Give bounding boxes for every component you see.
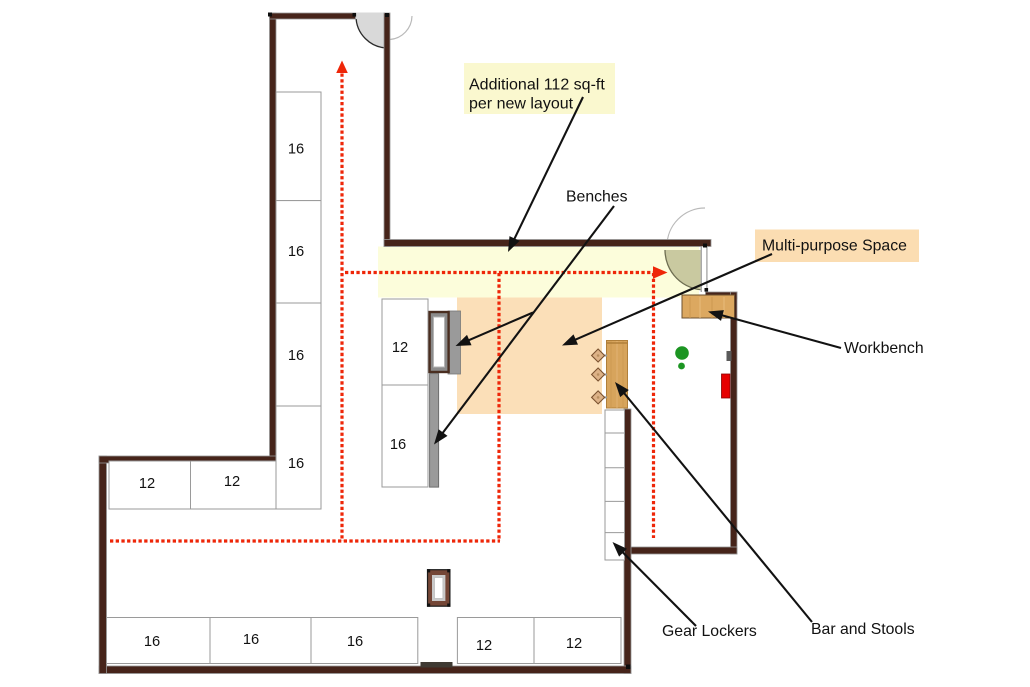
svg-text:Gear Lockers: Gear Lockers: [662, 623, 757, 640]
svg-text:Additional 112 sq-ft: Additional 112 sq-ft: [469, 77, 605, 94]
svg-text:Multi-purpose Space: Multi-purpose Space: [762, 238, 907, 255]
svg-text:12: 12: [224, 474, 240, 490]
svg-text:16: 16: [288, 142, 304, 158]
svg-text:16: 16: [288, 244, 304, 260]
svg-text:Bar and Stools: Bar and Stools: [811, 621, 915, 638]
svg-text:Benches: Benches: [566, 189, 628, 206]
svg-text:16: 16: [243, 632, 259, 648]
svg-text:16: 16: [390, 437, 406, 453]
svg-text:16: 16: [288, 456, 304, 472]
svg-text:16: 16: [144, 634, 160, 650]
svg-text:16: 16: [347, 634, 363, 650]
svg-text:12: 12: [392, 340, 408, 356]
svg-text:12: 12: [566, 636, 582, 652]
svg-text:16: 16: [288, 348, 304, 364]
svg-text:12: 12: [476, 638, 492, 654]
svg-text:Workbench: Workbench: [844, 340, 924, 357]
svg-text:per new layout: per new layout: [469, 96, 574, 113]
svg-text:12: 12: [139, 476, 155, 492]
